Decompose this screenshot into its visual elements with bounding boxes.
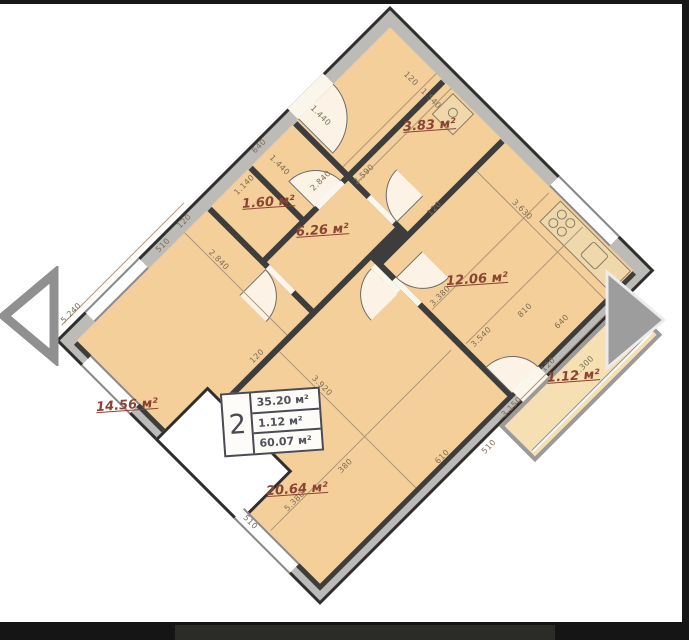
next-arrow-icon[interactable] bbox=[600, 266, 670, 374]
bottom-bar-segment bbox=[175, 625, 555, 640]
right-black-bar bbox=[682, 0, 689, 640]
apartment-legend: 2 35.20 м² 1.12 м² 60.07 м² bbox=[220, 387, 324, 458]
top-black-bar bbox=[0, 0, 689, 4]
total-area-value: 60.07 м² bbox=[254, 430, 322, 453]
floorplan-photo: 5.240 640 1.440 120 510 2.840 2.840 1.44… bbox=[0, 0, 689, 640]
rooms-count: 2 bbox=[222, 393, 255, 455]
bottom-black-bar bbox=[0, 622, 689, 640]
prev-arrow-icon[interactable] bbox=[0, 266, 62, 366]
apartment-plan: 5.240 640 1.440 120 510 2.840 2.840 1.44… bbox=[56, 6, 689, 640]
